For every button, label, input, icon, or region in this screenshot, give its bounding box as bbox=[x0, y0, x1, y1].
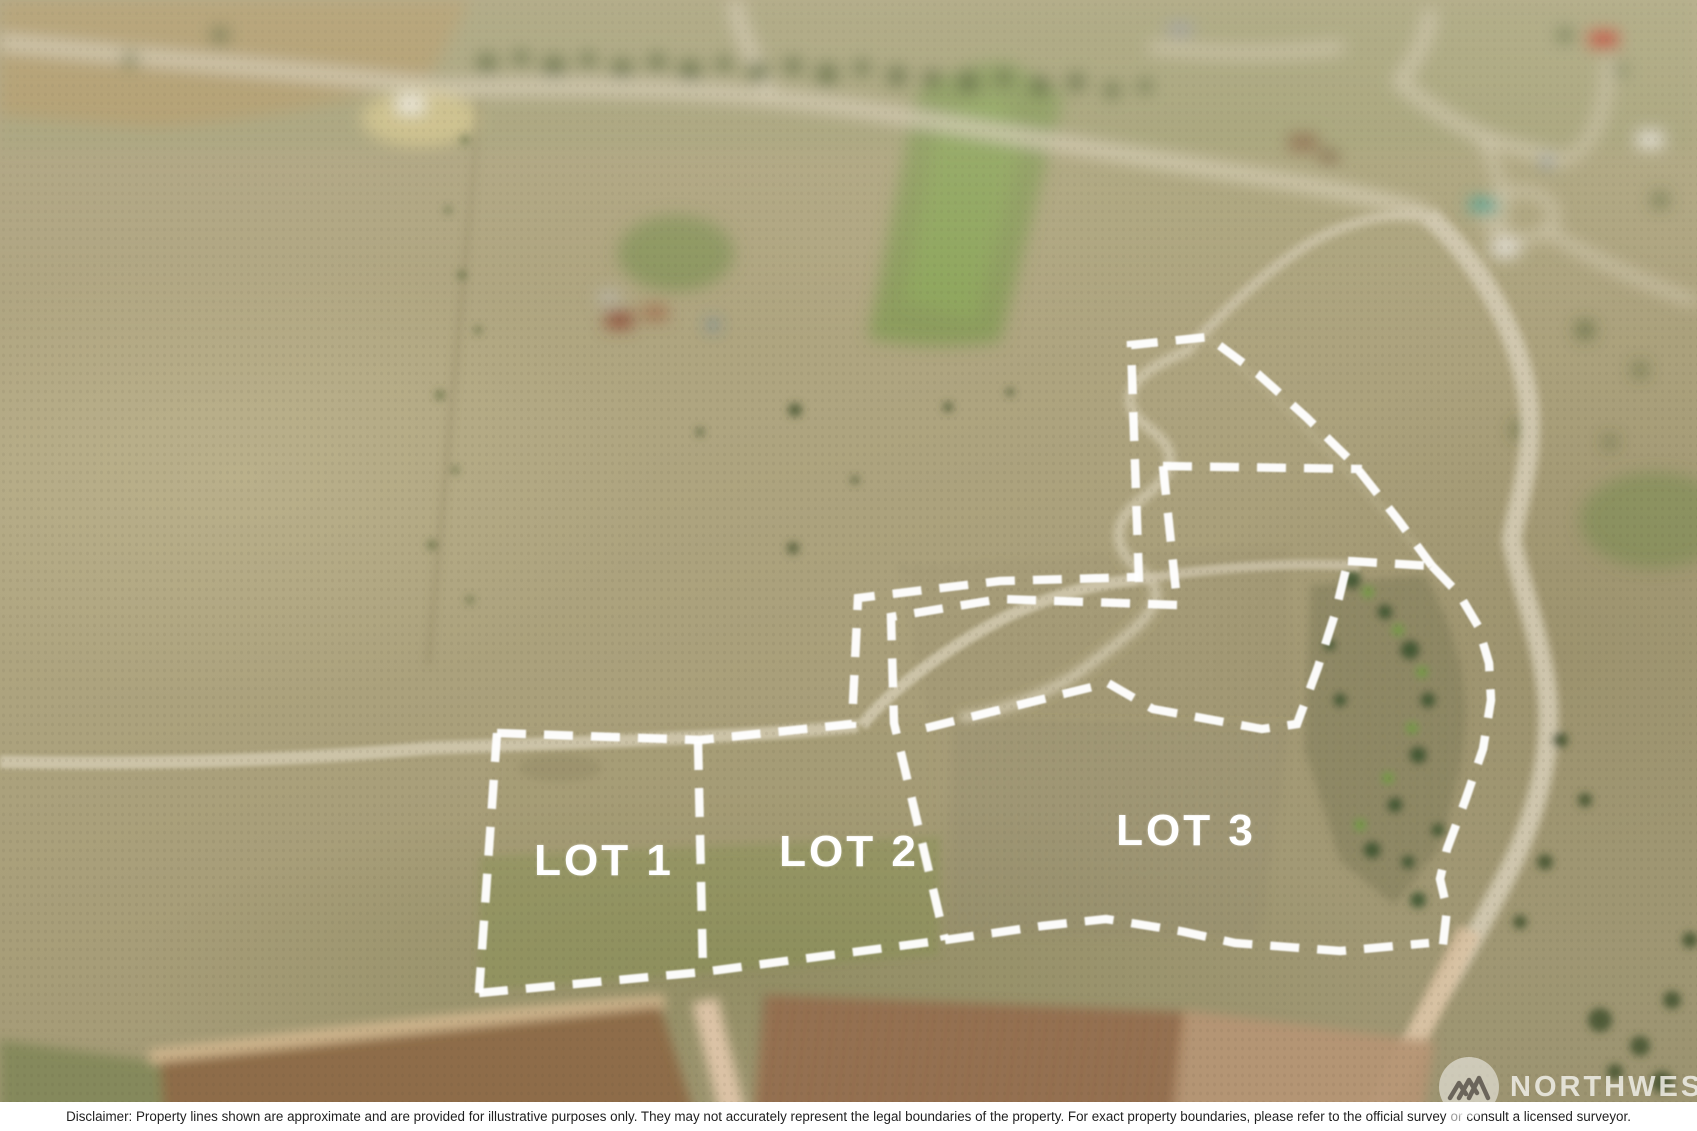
property-boundary-line bbox=[1348, 561, 1432, 566]
property-boundary-line bbox=[1131, 337, 1432, 582]
disclaimer-text: Disclaimer: Property lines shown are app… bbox=[66, 1109, 1446, 1124]
property-boundary-line bbox=[1163, 466, 1177, 601]
property-boundary-overlay bbox=[0, 0, 1697, 1131]
northwest-watermark: NORTHWEST bbox=[1438, 1052, 1697, 1122]
lot-1-label: LOT 1 bbox=[534, 836, 674, 886]
mountain-peaks-icon bbox=[1438, 1056, 1500, 1118]
property-boundary-line bbox=[1429, 566, 1491, 945]
property-boundary-line bbox=[479, 940, 945, 993]
property-boundary-line bbox=[479, 733, 497, 993]
property-boundary-line bbox=[698, 741, 703, 972]
property-boundary-line bbox=[497, 577, 1139, 740]
lot-2-label: LOT 2 bbox=[779, 827, 919, 877]
aerial-property-photo: LOT 1 LOT 2 LOT 3 NORTHWEST Disclaimer: … bbox=[0, 0, 1697, 1131]
lot-3-label: LOT 3 bbox=[1116, 806, 1256, 856]
property-boundary-line bbox=[1163, 466, 1362, 469]
property-boundary-line bbox=[945, 919, 1429, 951]
property-boundary-line bbox=[891, 599, 1177, 940]
watermark-brand-text: NORTHWEST bbox=[1510, 1071, 1697, 1104]
